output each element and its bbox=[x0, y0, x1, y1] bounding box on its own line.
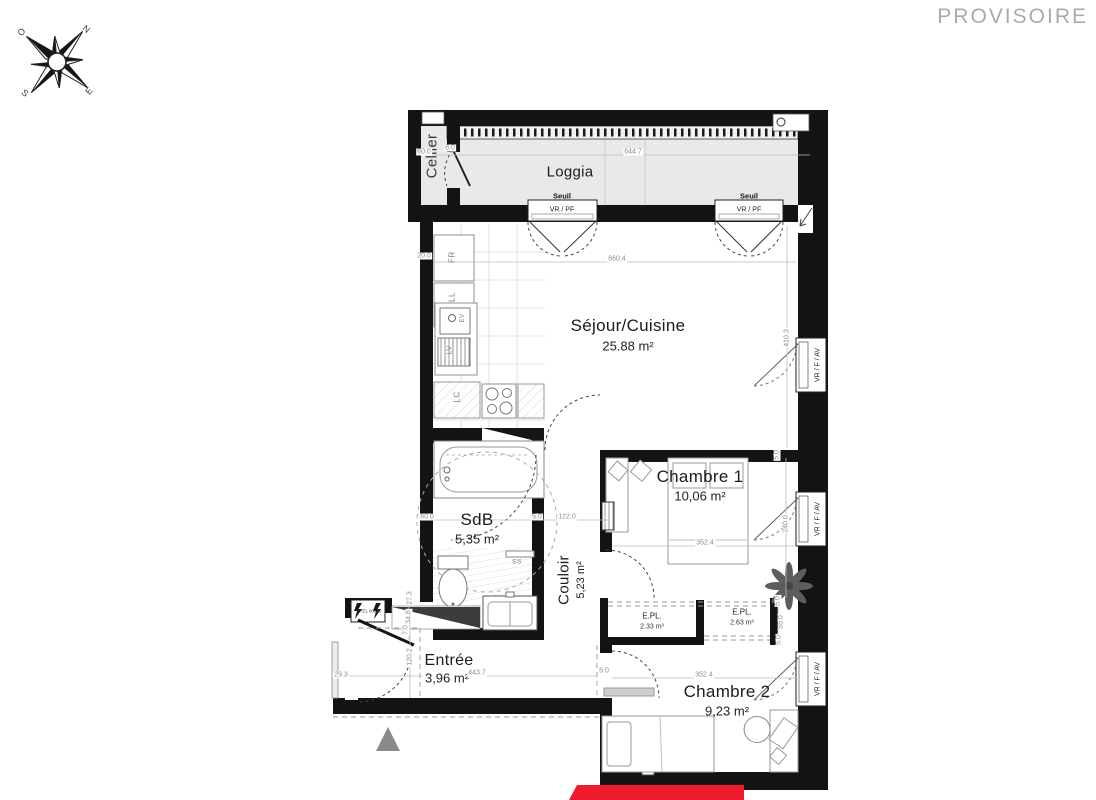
dimension-label: 5.0 bbox=[598, 668, 610, 675]
entree-area: 3,96 m² bbox=[423, 671, 471, 686]
seuil-label-2: Seuil bbox=[740, 192, 758, 201]
loggia-label: Loggia bbox=[547, 164, 594, 181]
dimension-label: 29.3 bbox=[333, 672, 349, 679]
floorplan-drawing bbox=[0, 0, 1096, 800]
dimension-label: 55.0 bbox=[778, 614, 785, 630]
exterior-duct bbox=[332, 642, 338, 698]
chair-icon bbox=[744, 717, 770, 743]
chambre1-label: Chambre 1 bbox=[657, 467, 744, 487]
floorplan-page: PROVISOIRE bbox=[0, 0, 1096, 800]
placard2-volume: 2.63 m³ bbox=[730, 620, 754, 627]
couloir-area: 5,23 m² bbox=[575, 561, 587, 598]
dimension-label: 443.7 bbox=[467, 670, 487, 677]
dimension-label: 410.3 bbox=[784, 328, 791, 348]
window-label-1: VR / F / AV bbox=[815, 348, 822, 382]
seuil-label-1: Seuil bbox=[553, 192, 571, 201]
placard1-volume: 2.33 m³ bbox=[640, 624, 664, 631]
loggia-door-label-2: VR / PF bbox=[737, 207, 762, 214]
counter-label: LC bbox=[453, 391, 462, 402]
dimension-label: 644.7 bbox=[623, 149, 643, 156]
window-label-2: VR / F / AV bbox=[815, 502, 822, 536]
entrance-arrow bbox=[376, 727, 400, 751]
electrical-panel-label: ETEL 60x25 bbox=[357, 609, 382, 614]
entree-label: Entrée bbox=[425, 652, 474, 670]
loggia-door-label-1: VR / PF bbox=[550, 207, 575, 214]
balcony-railing bbox=[447, 126, 798, 139]
sejour-area: 25.88 m² bbox=[602, 339, 653, 354]
placard1-label: E.PL. bbox=[642, 612, 662, 621]
fridge-label: FR bbox=[448, 251, 457, 263]
sink-label: EV bbox=[460, 313, 466, 322]
towel-dryer-label: SS bbox=[512, 559, 522, 566]
dimension-label: 660.4 bbox=[607, 256, 627, 263]
dimension-label: 120.2 bbox=[407, 647, 414, 667]
towel-dryer-icon bbox=[506, 551, 534, 557]
dimension-label: 352.4 bbox=[694, 672, 714, 679]
dimension-label: 5.0 bbox=[776, 634, 783, 646]
dimension-label: 34.8 bbox=[406, 609, 413, 625]
dimension-label: 20.0 bbox=[416, 253, 432, 260]
red-banner bbox=[569, 785, 744, 800]
dimension-label: 60.0 bbox=[419, 514, 435, 521]
placard2-label: E.PL. bbox=[732, 608, 752, 617]
dimension-label: 7.0 bbox=[403, 624, 410, 636]
radiator-icon bbox=[602, 502, 614, 530]
couloir-label: Couloir bbox=[556, 555, 573, 605]
sdb-label: SdB bbox=[460, 510, 493, 530]
sejour-label: Séjour/Cuisine bbox=[571, 316, 686, 336]
window-label-3: VR / F / AV bbox=[815, 662, 822, 696]
washer-label: LL bbox=[448, 292, 457, 302]
dimension-label: 60.0 bbox=[416, 149, 432, 156]
chambre2-area: 9,23 m² bbox=[705, 704, 749, 719]
dimension-label: 27.3 bbox=[407, 590, 414, 606]
dimension-label: 5.0 bbox=[775, 595, 782, 607]
dimension-label: 6.0 bbox=[444, 145, 456, 152]
dishwasher-label: LV bbox=[447, 345, 454, 354]
plant-icon bbox=[765, 562, 813, 610]
chambre2-label: Chambre 2 bbox=[684, 682, 771, 702]
compass-rose bbox=[1, 6, 114, 119]
cellier-label: Cellier bbox=[424, 134, 441, 179]
sdb-area: 5,35 m² bbox=[455, 532, 499, 547]
dimension-label: 240.0 bbox=[783, 514, 790, 534]
dimension-label: 5.0 bbox=[531, 514, 543, 521]
washbasin-icon bbox=[483, 592, 537, 630]
dimension-label: 352.4 bbox=[695, 540, 715, 547]
dimension-label: 5.0 bbox=[774, 449, 781, 461]
dimension-label: 122.0 bbox=[557, 514, 577, 521]
chambre1-area: 10,06 m² bbox=[674, 489, 725, 504]
toilet-icon bbox=[438, 556, 468, 607]
